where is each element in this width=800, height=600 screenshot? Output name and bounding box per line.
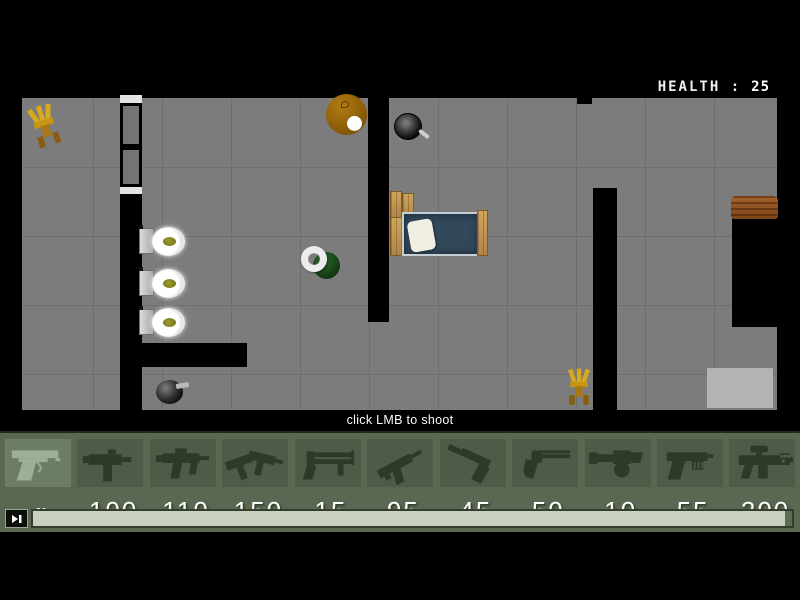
gun-pickup-barrel <box>176 382 190 389</box>
game-screen: HEALTH :25 <box>0 0 800 600</box>
window-sill-top <box>120 95 142 103</box>
weapon-slots <box>5 439 800 487</box>
grenade-launcher-icon <box>587 441 649 485</box>
auto-pistol-icon <box>659 441 721 485</box>
flush-button <box>139 306 143 310</box>
weapon-slot-mp5[interactable] <box>150 439 216 487</box>
toilet-3 <box>139 308 186 337</box>
machine-pistol-icon <box>369 441 431 485</box>
wall-middle-vertical <box>368 98 389 322</box>
skip-forward-icon <box>11 514 23 524</box>
flush-button <box>139 267 143 271</box>
wall-right-inset <box>732 217 777 327</box>
skip-forward-button[interactable] <box>5 509 28 528</box>
weapon-slot-sawed-off-shotgun[interactable] <box>295 439 361 487</box>
silenced-pistol-icon <box>442 441 504 485</box>
chair-bottom-right <box>564 366 594 410</box>
health-display: HEALTH :25 <box>658 79 770 95</box>
chair-icon <box>564 366 594 410</box>
pan-handle <box>418 129 430 140</box>
toilet-bowl <box>152 227 185 256</box>
toilet-bowl <box>152 308 185 337</box>
toilet-water <box>163 237 176 246</box>
toilet-2 <box>139 269 186 298</box>
table-mark <box>341 101 349 108</box>
frying-pan-pickup <box>394 113 434 145</box>
scoped-rifle-icon <box>731 441 793 485</box>
flush-button <box>139 225 143 229</box>
window-pane-upper <box>120 103 142 147</box>
revolver-icon <box>514 441 576 485</box>
bed-plank-left <box>390 191 402 218</box>
bottom-scrollbar <box>0 509 800 529</box>
weapon-slot-desert-eagle[interactable] <box>5 439 71 487</box>
mp5-icon <box>152 441 214 485</box>
pan-body <box>394 113 422 140</box>
health-label: HEALTH : <box>658 79 741 95</box>
bed-footboard <box>477 210 488 256</box>
mac-10-icon <box>79 441 141 485</box>
round-table <box>326 94 367 135</box>
weapon-slot-auto-pistol[interactable] <box>657 439 723 487</box>
wall-bathroom-bottom <box>142 343 247 367</box>
weapon-slot-revolver[interactable] <box>512 439 578 487</box>
scrollbar-track[interactable] <box>31 509 794 528</box>
rug <box>707 368 773 408</box>
weapon-slot-scoped-rifle[interactable] <box>729 439 795 487</box>
gun-pickup <box>156 377 190 404</box>
dual-uzis-icon <box>224 441 286 485</box>
sawed-off-shotgun-icon <box>297 441 359 485</box>
weapon-slot-dual-uzis[interactable] <box>222 439 288 487</box>
wall-right-vertical <box>593 188 617 410</box>
toilet-water <box>163 279 176 288</box>
toilet-1 <box>139 227 186 256</box>
hint-text: click LMB to shoot <box>0 413 800 427</box>
window-sill-bottom <box>120 187 142 194</box>
toilet-bowl <box>152 269 185 298</box>
weapon-slot-mac-10[interactable] <box>77 439 143 487</box>
weapon-slot-machine-pistol[interactable] <box>367 439 433 487</box>
weapon-slot-silenced-pistol[interactable] <box>440 439 506 487</box>
window-pane-lower <box>120 147 142 187</box>
bed-pillow <box>406 218 436 253</box>
wooden-desk <box>731 196 778 219</box>
wall-top-notch <box>577 98 592 104</box>
bed-mattress <box>402 212 480 256</box>
weapon-slot-grenade-launcher[interactable] <box>585 439 651 487</box>
desert-eagle-icon <box>7 441 69 485</box>
health-value: 25 <box>751 79 770 95</box>
plate <box>347 116 362 131</box>
toilet-water <box>163 318 176 327</box>
player-ring <box>301 246 327 272</box>
scrollbar-end-cap <box>785 511 792 526</box>
